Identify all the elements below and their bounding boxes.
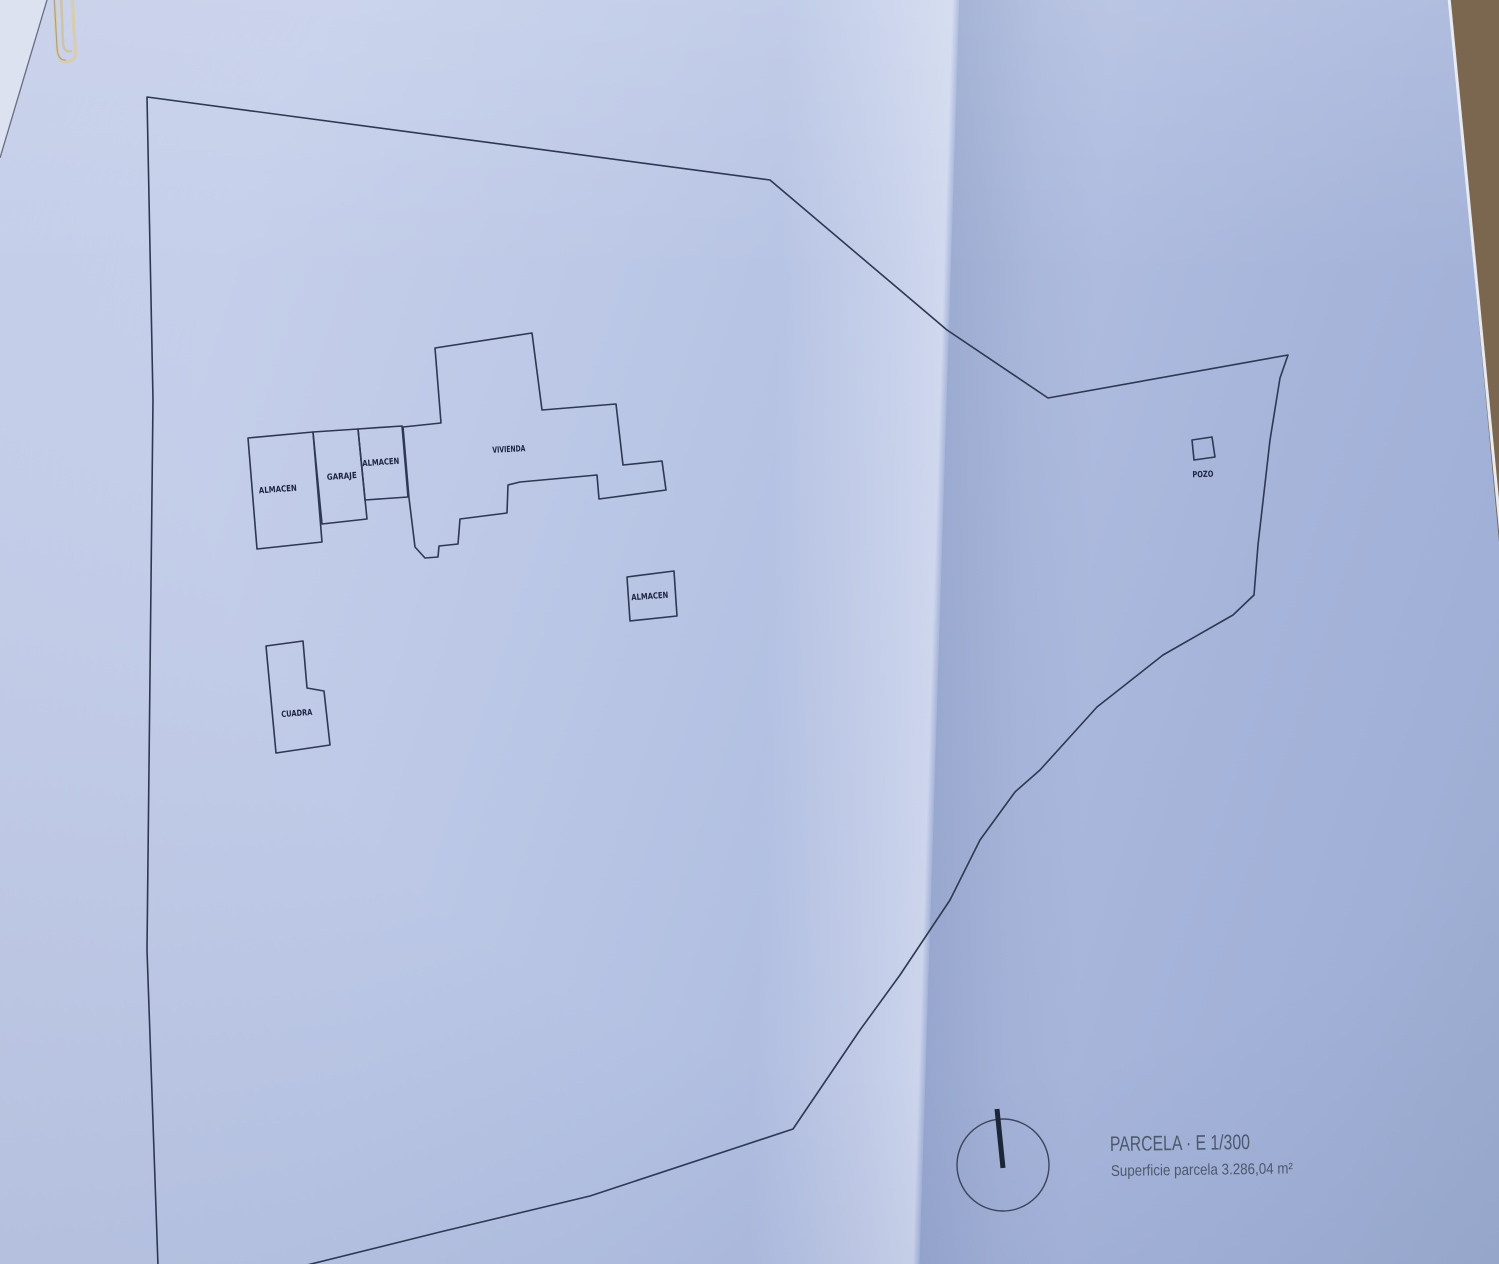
label-vivienda: VIVIENDA [492, 444, 526, 456]
building-cuadra [266, 641, 330, 753]
label-garaje: GARAJE [327, 471, 358, 483]
paper-edge-highlight [1449, 0, 1499, 536]
label-almacen-left: ALMACEN [259, 484, 298, 497]
site-plan-drawing: ALMACEN GARAJE ALMACEN VIVIENDA ALMACEN … [0, 0, 1499, 1264]
building-vivienda [403, 333, 666, 558]
paperclip [0, 0, 120, 110]
label-almacen-small: ALMACEN [362, 457, 400, 470]
label-pozo: POZO [1192, 470, 1213, 481]
plan-title: PARCELA · E 1/300 [1110, 1131, 1250, 1156]
pozo-square [1192, 437, 1215, 460]
plan-area-text: Superficie parcela 3.286,04 m² [1111, 1160, 1293, 1180]
parcel-boundary [147, 97, 1288, 1264]
label-cuadra: CUADRA [281, 708, 313, 720]
north-needle [997, 1109, 1003, 1168]
label-almacen-detached: ALMACEN [631, 591, 669, 604]
photo-of-site-plan: ALMACEN GARAJE ALMACEN VIVIENDA ALMACEN … [0, 0, 1499, 1264]
